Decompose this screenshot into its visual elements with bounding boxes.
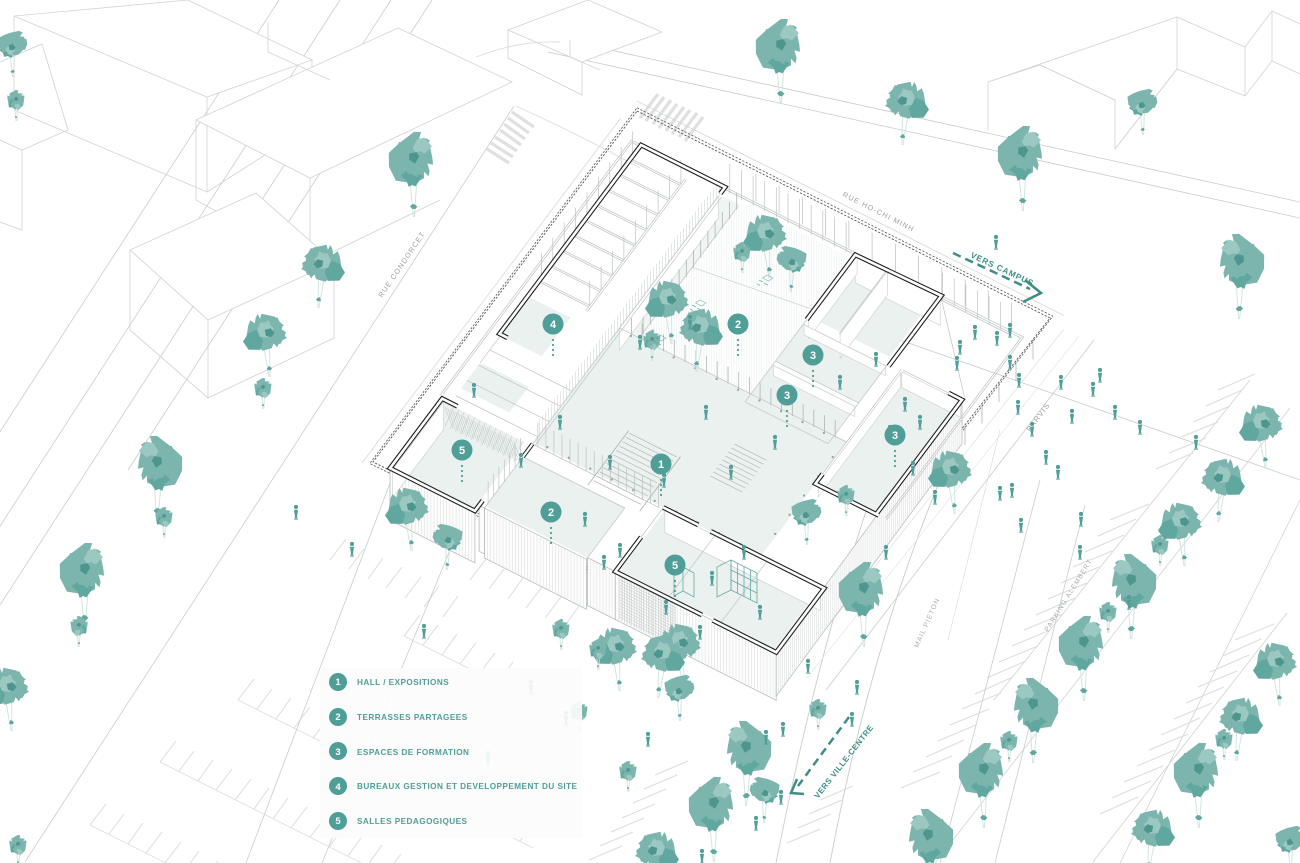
svg-text:2: 2 — [335, 712, 340, 723]
svg-text:ESPACES DE FORMATION: ESPACES DE FORMATION — [357, 748, 469, 757]
svg-text:4: 4 — [550, 319, 557, 331]
svg-text:TERRASSES PARTAGEES: TERRASSES PARTAGEES — [357, 713, 468, 722]
svg-text:HALL / EXPOSITIONS: HALL / EXPOSITIONS — [357, 678, 449, 687]
svg-text:3: 3 — [784, 390, 790, 402]
svg-text:4: 4 — [335, 782, 341, 793]
svg-text:2: 2 — [735, 319, 741, 331]
svg-text:1: 1 — [335, 677, 341, 688]
svg-text:2: 2 — [548, 507, 554, 519]
svg-text:3: 3 — [335, 747, 340, 758]
svg-text:3: 3 — [810, 350, 816, 362]
svg-text:5: 5 — [459, 445, 465, 457]
svg-text:3: 3 — [892, 430, 898, 442]
svg-text:5: 5 — [335, 816, 341, 827]
svg-text:BUREAUX GESTION ET DEVELOPPEME: BUREAUX GESTION ET DEVELOPPEMENT DU SITE — [357, 782, 578, 791]
svg-text:1: 1 — [658, 459, 664, 471]
svg-text:5: 5 — [672, 560, 678, 572]
svg-text:SALLES PEDAGOGIQUES: SALLES PEDAGOGIQUES — [357, 817, 468, 826]
